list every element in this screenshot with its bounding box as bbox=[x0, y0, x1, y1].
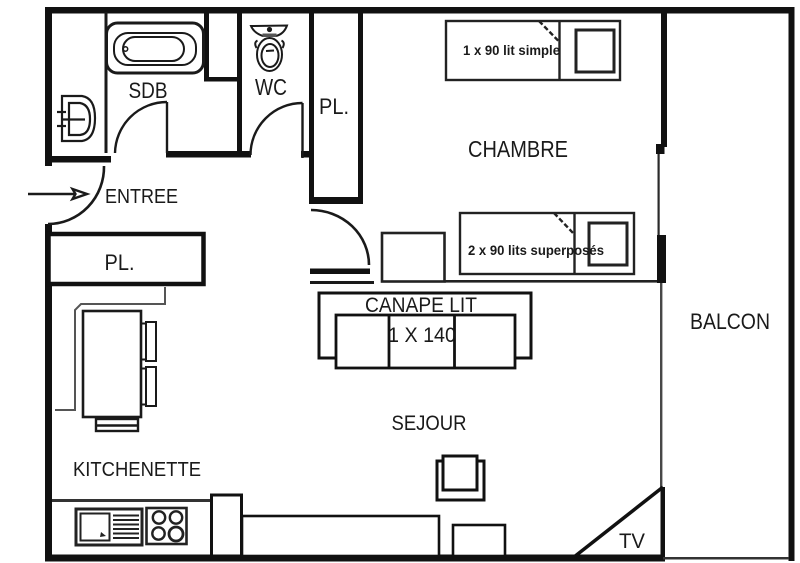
svg-text:CANAPE LIT: CANAPE LIT bbox=[365, 294, 477, 317]
svg-text:2 x 90 lits superposés: 2 x 90 lits superposés bbox=[468, 242, 604, 258]
svg-text:SDB: SDB bbox=[129, 78, 168, 103]
svg-text:BALCON: BALCON bbox=[690, 309, 770, 334]
svg-text:WC: WC bbox=[255, 74, 287, 100]
svg-text:PL.: PL. bbox=[105, 250, 135, 275]
svg-text:KITCHENETTE: KITCHENETTE bbox=[73, 459, 201, 481]
svg-text:1 x 90 lit simple: 1 x 90 lit simple bbox=[463, 42, 560, 58]
svg-text:CHAMBRE: CHAMBRE bbox=[468, 136, 568, 162]
svg-text:TV: TV bbox=[619, 530, 645, 553]
svg-text:SEJOUR: SEJOUR bbox=[392, 412, 467, 435]
svg-text:ENTREE: ENTREE bbox=[105, 186, 178, 208]
svg-text:1 X 140: 1 X 140 bbox=[388, 324, 456, 347]
svg-text:PL.: PL. bbox=[319, 94, 349, 119]
